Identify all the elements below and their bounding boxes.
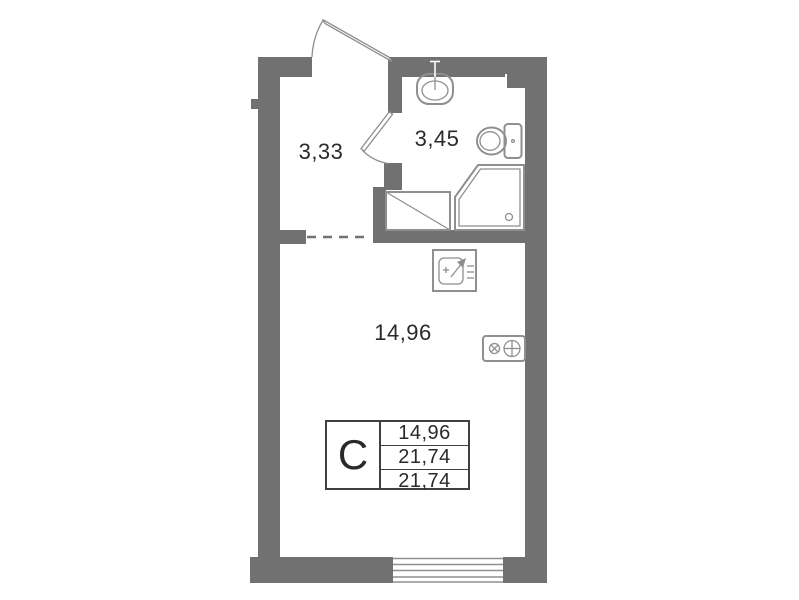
stove-icon <box>483 336 525 361</box>
shower-icon <box>455 165 524 230</box>
apartment-type-cell: C <box>327 422 381 488</box>
toilet-icon <box>477 124 522 158</box>
entry-door-icon <box>312 20 392 62</box>
kitchen-sink-icon <box>433 250 476 291</box>
total-area-with-balcony-value: 21,74 <box>381 470 468 493</box>
hallway-area-label: 3,33 <box>299 139 344 165</box>
wash-basin-icon <box>417 61 453 104</box>
bathroom-door-icon <box>361 112 393 164</box>
apartment-info-table: C 14,96 21,74 21,74 <box>325 420 470 490</box>
bathroom-area-label: 3,45 <box>415 126 460 152</box>
fixtures-layer <box>0 0 799 600</box>
apartment-areas-column: 14,96 21,74 21,74 <box>381 422 468 488</box>
floor-plan: 3,33 3,45 14,96 C 14,96 21,74 21,74 <box>0 0 799 600</box>
living-area-value: 14,96 <box>381 422 468 446</box>
washing-machine-icon <box>386 192 450 230</box>
window-icon <box>393 557 503 583</box>
living-room-area-label: 14,96 <box>374 320 432 346</box>
total-area-value: 21,74 <box>381 446 468 470</box>
